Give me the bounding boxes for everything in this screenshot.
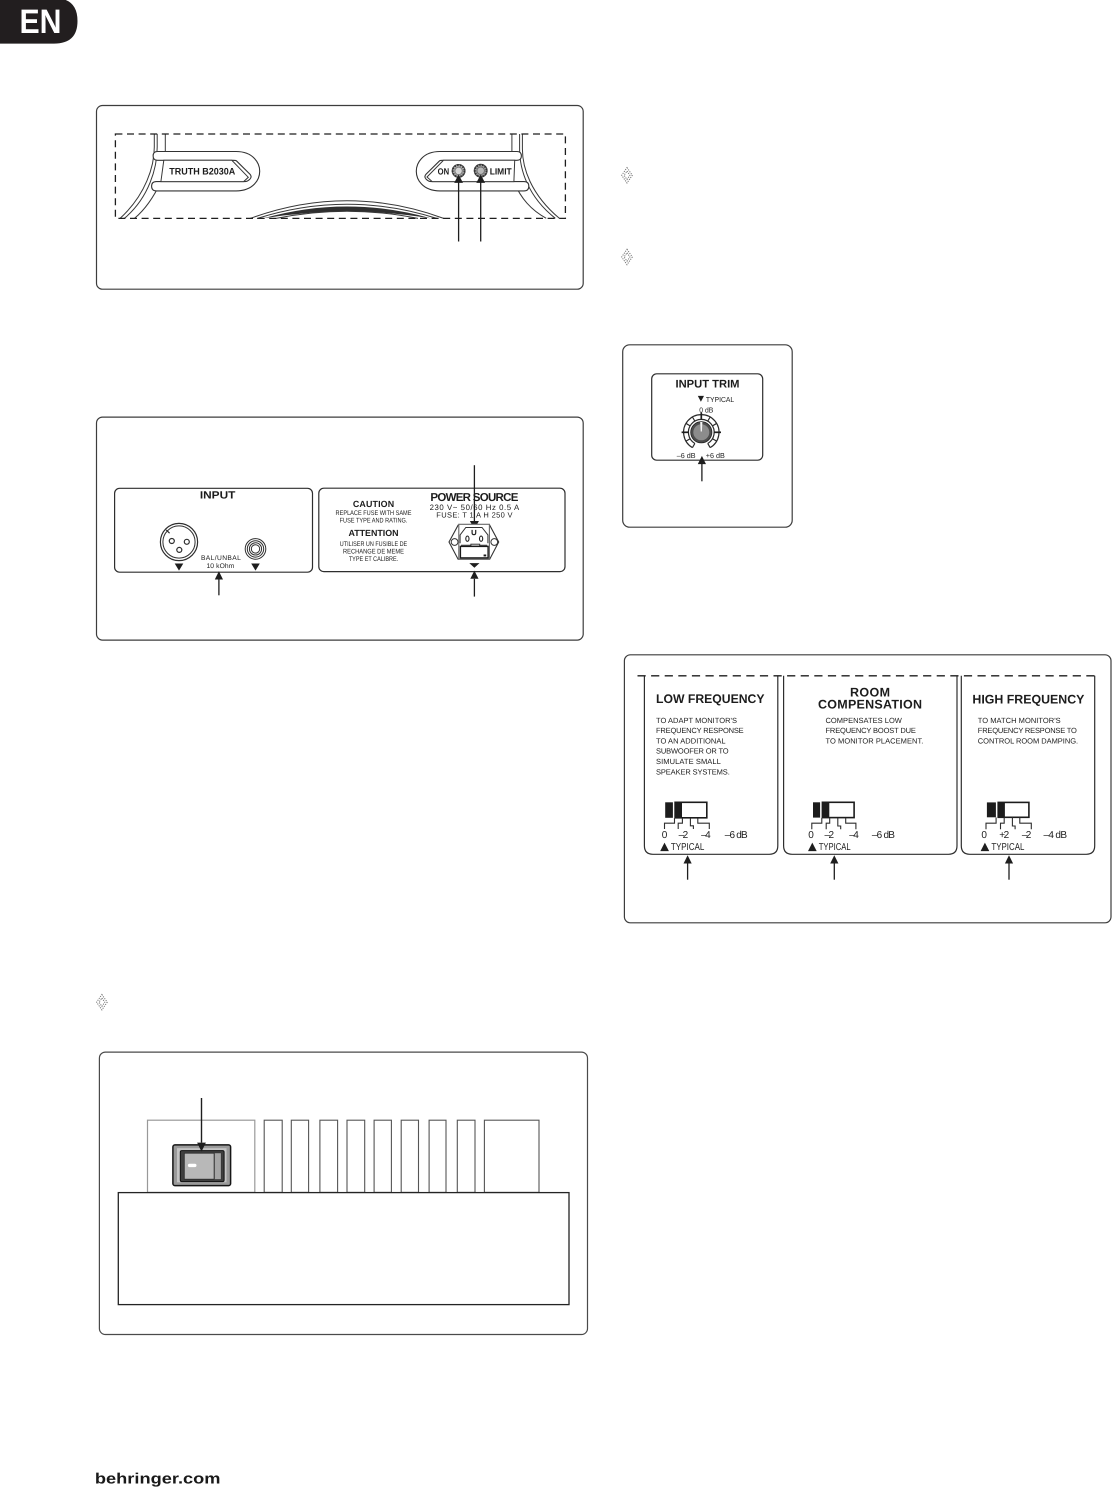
svg-text:LOW FREQUENCY: LOW FREQUENCY bbox=[656, 692, 765, 706]
svg-text:10 kOhm: 10 kOhm bbox=[206, 563, 234, 570]
svg-text:+2: +2 bbox=[999, 830, 1009, 841]
svg-text:TYPICAL: TYPICAL bbox=[671, 842, 705, 853]
svg-text:behringer.com: behringer.com bbox=[95, 1470, 221, 1487]
svg-text:–6 dB: –6 dB bbox=[872, 830, 895, 841]
svg-text:–6 dB: –6 dB bbox=[677, 451, 696, 460]
svg-text:TYPICAL: TYPICAL bbox=[706, 395, 734, 404]
svg-text:–2: –2 bbox=[679, 830, 689, 841]
svg-text:CAUTION: CAUTION bbox=[353, 499, 394, 509]
svg-text:TO MATCH MONITOR'S: TO MATCH MONITOR'S bbox=[978, 716, 1061, 725]
svg-text:SIMULATE SMALL: SIMULATE SMALL bbox=[656, 757, 721, 766]
svg-text:BAL/UNBAL: BAL/UNBAL bbox=[201, 555, 241, 562]
svg-text:ON: ON bbox=[438, 166, 450, 176]
svg-text:HIGH FREQUENCY: HIGH FREQUENCY bbox=[972, 692, 1085, 706]
svg-text:RECHANGE DE MEME: RECHANGE DE MEME bbox=[343, 548, 404, 555]
svg-text:SUBWOOFER OR TO: SUBWOOFER OR TO bbox=[656, 747, 729, 756]
svg-text:INPUT: INPUT bbox=[200, 489, 236, 501]
svg-text:FUSE TYPE AND RATING.: FUSE TYPE AND RATING. bbox=[340, 518, 408, 525]
svg-text:0: 0 bbox=[981, 830, 987, 841]
svg-text:–2: –2 bbox=[825, 830, 835, 841]
svg-text:ATTENTION: ATTENTION bbox=[348, 528, 398, 538]
svg-text:REPLACE FUSE WITH SAME: REPLACE FUSE WITH SAME bbox=[336, 510, 412, 517]
svg-text:–4: –4 bbox=[701, 830, 711, 841]
svg-text:TO ADAPT MONITOR'S: TO ADAPT MONITOR'S bbox=[656, 716, 737, 725]
svg-text:CONTROL ROOM DAMPING.: CONTROL ROOM DAMPING. bbox=[978, 736, 1078, 745]
svg-text:TYPICAL: TYPICAL bbox=[819, 842, 851, 853]
svg-text:LIMIT: LIMIT bbox=[490, 166, 512, 176]
svg-text:COMPENSATES LOW: COMPENSATES LOW bbox=[826, 716, 903, 725]
svg-text:–6 dB: –6 dB bbox=[725, 830, 748, 841]
svg-text:–2: –2 bbox=[1022, 830, 1032, 841]
svg-text:FREQUENCY RESPONSE: FREQUENCY RESPONSE bbox=[656, 726, 744, 735]
svg-text:UTILISER UN FUSIBLE DE: UTILISER UN FUSIBLE DE bbox=[340, 541, 408, 548]
svg-text:FREQUENCY BOOST DUE: FREQUENCY BOOST DUE bbox=[826, 726, 916, 735]
svg-text:TYPE ET CALIBRE.: TYPE ET CALIBRE. bbox=[349, 556, 398, 563]
svg-text:EN: EN bbox=[20, 3, 62, 41]
svg-text:–4 dB: –4 dB bbox=[1044, 830, 1068, 841]
svg-text:TYPICAL: TYPICAL bbox=[991, 842, 1024, 853]
svg-text:TRUTH B2030A: TRUTH B2030A bbox=[169, 167, 235, 178]
svg-text:FREQUENCY RESPONSE TO: FREQUENCY RESPONSE TO bbox=[978, 726, 1077, 735]
svg-text:INPUT TRIM: INPUT TRIM bbox=[676, 378, 740, 390]
svg-text:TO AN ADDITIONAL: TO AN ADDITIONAL bbox=[656, 736, 726, 745]
svg-text:+6 dB: +6 dB bbox=[706, 451, 725, 460]
svg-text:0: 0 bbox=[662, 830, 668, 841]
svg-text:COMPENSATION: COMPENSATION bbox=[818, 698, 922, 712]
svg-text:–4: –4 bbox=[849, 830, 859, 841]
svg-text:TO MONITOR PLACEMENT.: TO MONITOR PLACEMENT. bbox=[826, 736, 924, 745]
svg-text:0: 0 bbox=[808, 830, 814, 841]
svg-text:SPEAKER SYSTEMS.: SPEAKER SYSTEMS. bbox=[656, 767, 730, 776]
